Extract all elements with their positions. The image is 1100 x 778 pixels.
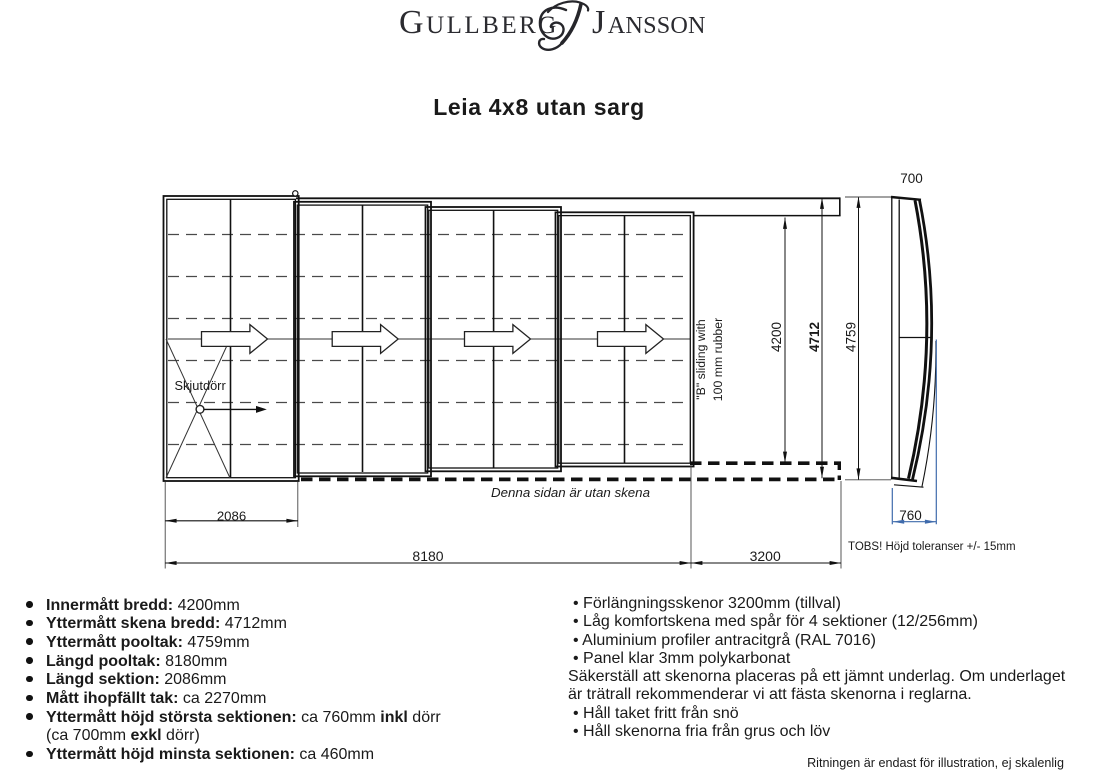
- svg-text:Denna sidan är utan skena: Denna sidan är utan skena: [491, 485, 650, 500]
- svg-text:2086: 2086: [217, 508, 246, 523]
- svg-text:Skjutdörr: Skjutdörr: [175, 378, 227, 393]
- svg-text:4712: 4712: [807, 322, 822, 352]
- svg-text:"B" sliding with: "B" sliding with: [694, 319, 708, 400]
- svg-text:3200: 3200: [750, 548, 781, 564]
- svg-text:TOBS! Höjd toleranser +/- 15mm: TOBS! Höjd toleranser +/- 15mm: [848, 541, 1016, 553]
- svg-text:8180: 8180: [412, 548, 443, 564]
- svg-text:4200: 4200: [769, 322, 784, 352]
- svg-text:700: 700: [900, 171, 923, 186]
- svg-text:760: 760: [899, 508, 922, 523]
- svg-text:100 mm rubber: 100 mm rubber: [711, 318, 725, 401]
- svg-text:4759: 4759: [844, 322, 859, 352]
